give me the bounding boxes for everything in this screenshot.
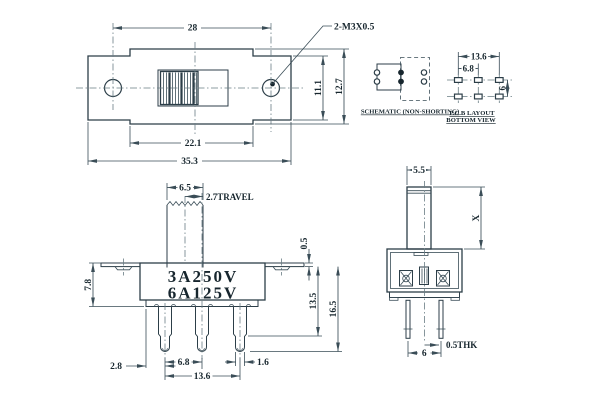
- terminal-open: [374, 70, 379, 75]
- dim-pin-depth: 13.5: [309, 292, 319, 309]
- dim-bracket-thickness: 0.5: [300, 237, 310, 249]
- side-top-slot: [414, 253, 428, 256]
- pcb-pad: [475, 78, 483, 83]
- drawing-canvas: 28 22.1 35.3 11.1 12.7 2-M3X0.5 SCHEMATI…: [0, 0, 600, 400]
- dim-overall-width: 35.3: [181, 157, 198, 167]
- top-view: 28 22.1 35.3 11.1 12.7 2-M3X0.5: [76, 22, 375, 167]
- pcb-pad: [475, 94, 483, 99]
- dim-pin-span: 13.6: [194, 372, 211, 382]
- side-terminal-left-hatch: [401, 272, 412, 286]
- schematic-wire-loop: [377, 64, 401, 90]
- pcb-caption-line1: P.C.B LAYOUT: [449, 110, 495, 117]
- pcb-pad: [496, 94, 504, 99]
- schematic-view: SCHEMATIC (NON-SHORTING): [361, 58, 459, 116]
- pcb-pad: [455, 94, 463, 99]
- pcb-caption-line2: BOTTOM VIEW: [446, 117, 496, 124]
- dim-pin-thickness: 0.5THK: [446, 340, 477, 350]
- dim-inner-width: 22.1: [185, 139, 202, 149]
- dim-pin-spacing: 6: [422, 349, 427, 359]
- side-knob: [407, 187, 431, 249]
- side-view: 5.5 X 0.5THK 6: [387, 165, 485, 359]
- schematic-caption: SCHEMATIC (NON-SHORTING): [361, 109, 459, 116]
- dim-knob-depth: 5.5: [413, 166, 425, 176]
- pcb-row-pitch: 6: [498, 86, 508, 91]
- dim-pin-pitch: 6.8: [178, 358, 190, 368]
- pcb-pad-span: 13.6: [471, 52, 487, 62]
- dim-end-height: 11.1: [314, 80, 324, 96]
- side-terminal-right-hatch: [438, 272, 449, 286]
- terminal-open: [421, 79, 426, 84]
- dim-body-height: 12.7: [335, 78, 345, 95]
- pcb-pad: [496, 78, 504, 83]
- hole-callout-label: 2-M3X0.5: [334, 23, 375, 33]
- bracket-ear-right: [265, 263, 304, 267]
- side-knob-lines: [407, 191, 431, 194]
- terminal-common: [398, 70, 404, 76]
- dim-overall-height: 16.5: [329, 300, 339, 317]
- dim-knob-height: X: [472, 214, 482, 221]
- terminal-open: [374, 79, 379, 84]
- top-extension-lines: [88, 49, 349, 165]
- dim-pin-width: 1.6: [257, 358, 269, 368]
- dim-hole-spacing: 28: [188, 24, 198, 34]
- dim-travel: 2.7TRAVEL: [206, 192, 254, 202]
- dim-bracket-height: 7.8: [84, 279, 94, 291]
- side-extension-lines: [407, 166, 485, 357]
- pcb-layout-view: 13.6 6.8 6 P.C.B LAYOUT BOTTOM VIEW: [446, 52, 514, 125]
- dim-knob-width: 6.5: [179, 184, 191, 194]
- slide-switch-drawing: 28 22.1 35.3 11.1 12.7 2-M3X0.5 SCHEMATI…: [0, 0, 600, 400]
- side-pin-right: [439, 300, 443, 338]
- terminal-common: [398, 79, 404, 85]
- front-view: 3A250V 6A125V 6.5 2.7TRAVEL 7.8 0.5 13.5…: [84, 182, 342, 382]
- pin-tip-arcs: [163, 348, 243, 350]
- bracket-ear-left: [101, 263, 140, 267]
- terminal-open: [421, 70, 426, 75]
- side-pin-left: [406, 300, 410, 338]
- pcb-pad: [455, 78, 463, 83]
- pcb-pad-pitch: 6.8: [463, 64, 475, 74]
- dim-edge-to-pin: 2.8: [110, 362, 122, 372]
